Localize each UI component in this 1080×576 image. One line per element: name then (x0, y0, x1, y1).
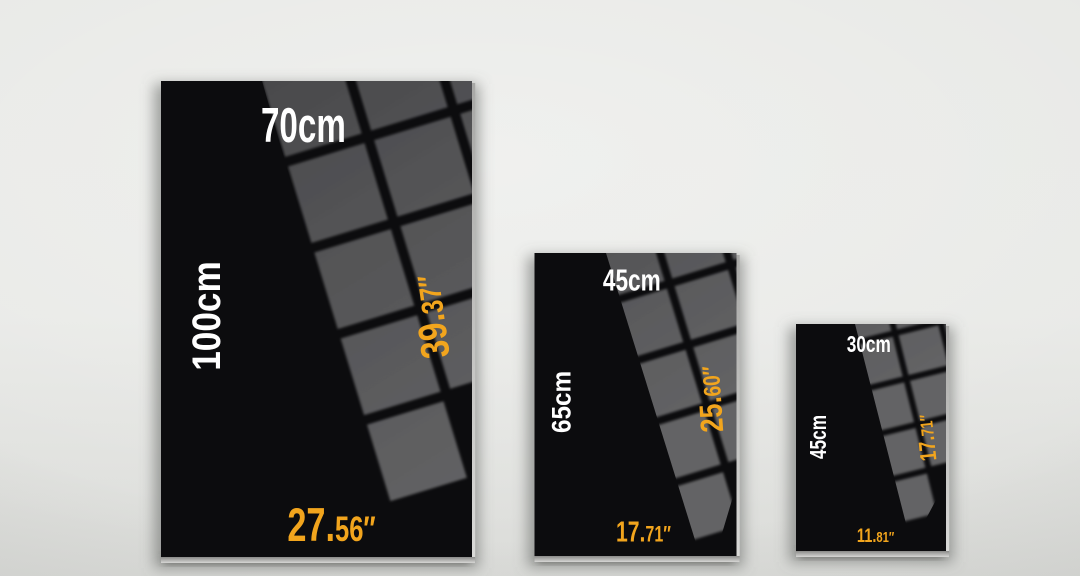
svg-text:70cm: 70cm (261, 97, 346, 152)
svg-text:45cm: 45cm (807, 415, 832, 459)
svg-text:30cm: 30cm (847, 333, 891, 358)
svg-text:45cm: 45cm (603, 262, 661, 297)
svg-text:100cm: 100cm (184, 261, 229, 371)
svg-text:65cm: 65cm (547, 371, 576, 433)
